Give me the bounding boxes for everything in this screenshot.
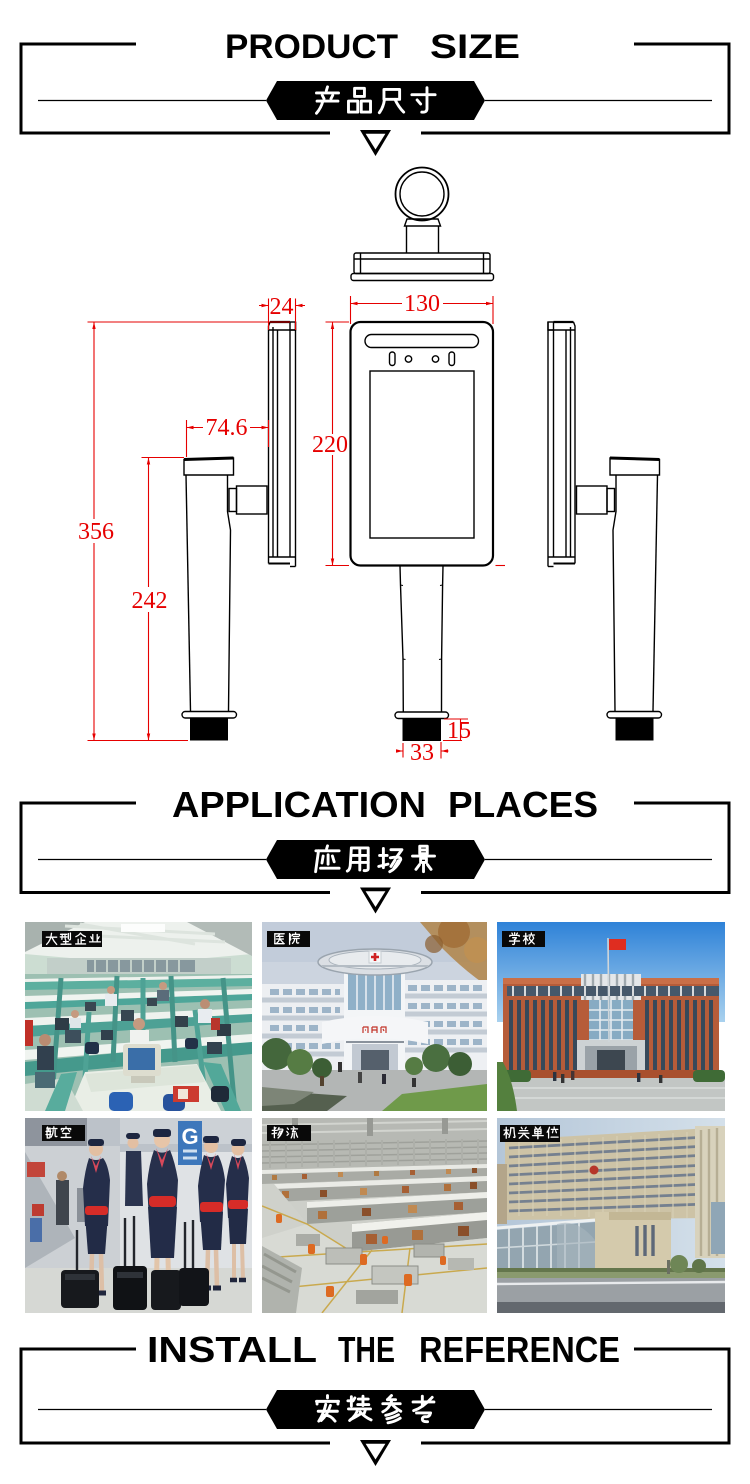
- svg-text:356: 356: [78, 519, 114, 545]
- svg-text:33: 33: [410, 740, 434, 766]
- svg-text:THE: THE: [338, 1330, 395, 1370]
- svg-text:G: G: [181, 1124, 198, 1149]
- svg-text:24: 24: [270, 294, 294, 320]
- svg-text:130: 130: [404, 291, 440, 317]
- svg-text:APPLICATION: APPLICATION: [172, 784, 426, 825]
- svg-text:PRODUCT: PRODUCT: [225, 28, 398, 66]
- svg-text:242: 242: [132, 588, 168, 614]
- svg-text:74.6: 74.6: [206, 415, 248, 441]
- svg-text:15: 15: [447, 718, 471, 744]
- svg-text:REFERENCE: REFERENCE: [419, 1330, 620, 1370]
- svg-text:220: 220: [312, 432, 348, 458]
- svg-text:SIZE: SIZE: [430, 28, 520, 66]
- svg-text:INSTALL: INSTALL: [147, 1330, 317, 1370]
- svg-text:PLACES: PLACES: [448, 784, 598, 825]
